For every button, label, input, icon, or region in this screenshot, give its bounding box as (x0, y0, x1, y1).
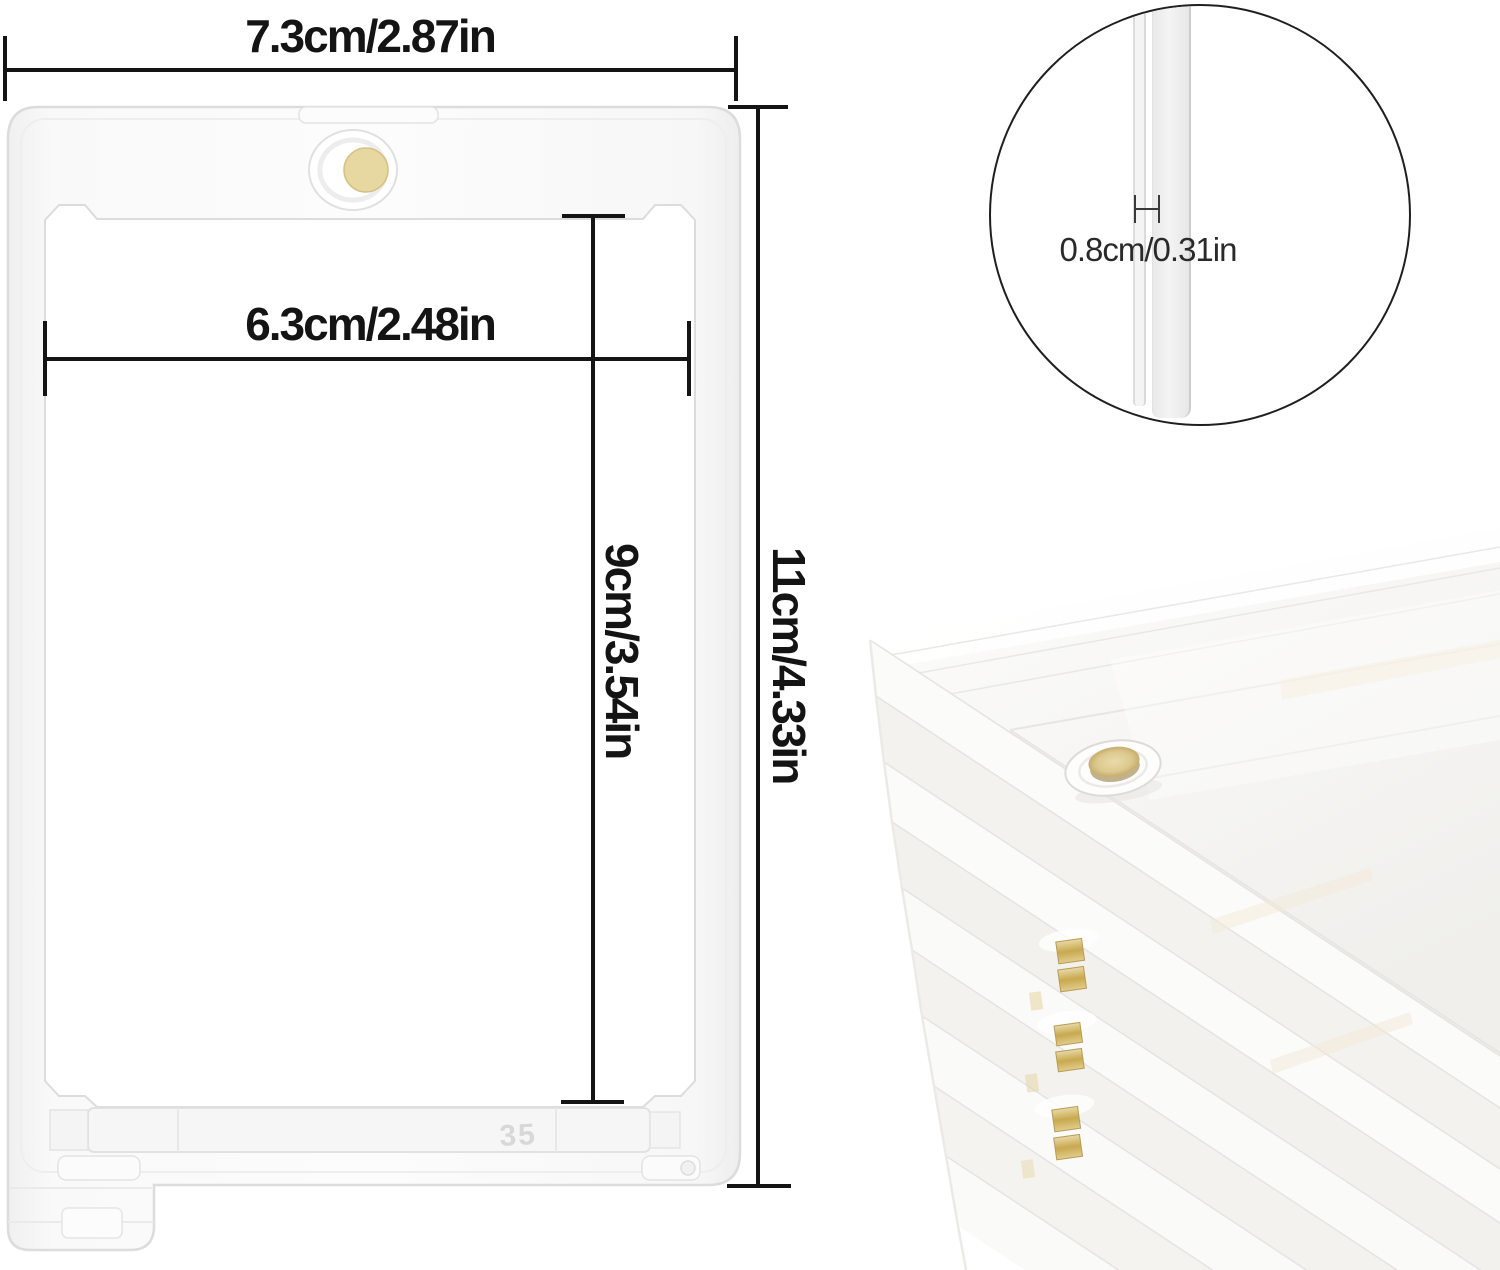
gold-glint (1025, 1073, 1039, 1092)
outer-height-label: 11cm/4.33in (766, 547, 812, 783)
magnet-disc (344, 148, 388, 192)
latch-hinge-right (650, 1112, 680, 1148)
thickness-marker-connector (1134, 208, 1160, 210)
outer-height-tick-bottom (727, 1184, 791, 1188)
product-dimension-diagram: 35 7.3cm/2.87in 6.3cm/2.48in 9cm/3.54in … (0, 0, 1500, 1270)
gold-glint (1021, 1159, 1035, 1178)
thickness-inset-circle: 0.8cm/0.31in (989, 4, 1411, 426)
latch-bar (88, 1108, 650, 1152)
embossed-number: 35 (499, 1118, 538, 1153)
gold-glint (1029, 991, 1043, 1010)
inner-width-tick-right (687, 321, 691, 396)
outer-height-tick-top (728, 105, 788, 109)
stacked-holders-photo (850, 500, 1500, 1270)
latch-extension-slot (62, 1208, 122, 1238)
outer-width-tick-right (734, 36, 738, 101)
card-holder-front-diagram: 35 (0, 95, 800, 1260)
bottom-slot-pin (681, 1161, 695, 1175)
outer-width-tick-left (3, 36, 7, 101)
inner-width-label: 6.3cm/2.48in (240, 301, 500, 347)
latch-hinge-left (50, 1110, 88, 1150)
inner-width-tick-left (43, 321, 47, 396)
inner-height-label: 9cm/3.54in (599, 543, 645, 758)
outer-width-dimension-line (5, 68, 738, 72)
outer-width-label: 7.3cm/2.87in (240, 13, 500, 59)
thickness-label: 0.8cm/0.31in (1051, 231, 1245, 269)
outer-height-dimension-line (756, 107, 760, 1188)
inner-height-dimension-line (591, 216, 595, 1104)
inner-height-tick-bottom (561, 1100, 624, 1104)
bottom-slot-left (58, 1156, 140, 1180)
inner-height-tick-top (562, 214, 625, 218)
top-slot (299, 107, 438, 123)
